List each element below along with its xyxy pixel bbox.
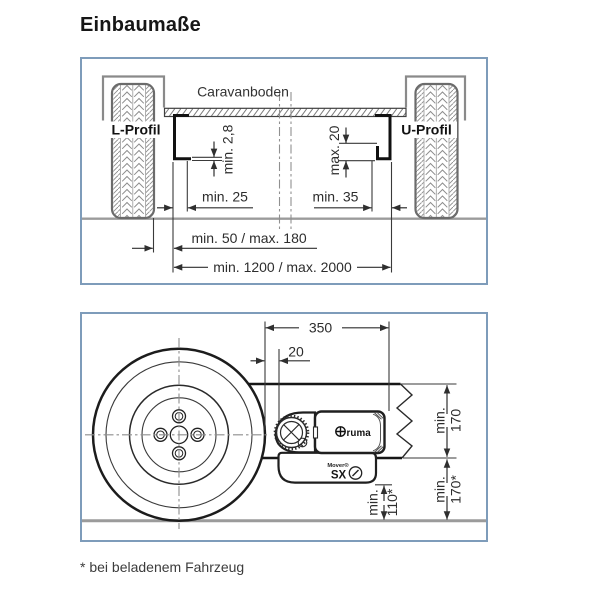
svg-text:min.: min. [432, 407, 448, 433]
dim-tyre-to-rail: min. 50 / max. 180 [132, 230, 317, 248]
side-view-diagram: 350 20 [80, 312, 488, 542]
caravan-floor [165, 108, 407, 116]
dim-roller-gap: 20 [251, 344, 311, 361]
svg-text:U-Profil: U-Profil [401, 122, 452, 138]
left-tyre [112, 84, 154, 218]
manual-page: Einbaumaße [0, 0, 600, 600]
badge-symbol-icon [349, 467, 361, 479]
page-title: Einbaumaße [80, 14, 201, 37]
mover-unit: ruma Mover® SX [275, 412, 385, 483]
svg-text:ruma: ruma [347, 428, 372, 439]
dim-mover-to-ground: min. 110* [365, 486, 401, 520]
svg-text:110*: 110* [384, 488, 400, 516]
svg-text:max. 20: max. 20 [326, 125, 342, 175]
dim-rail-span: min. 1200 / max. 2000 [174, 259, 391, 275]
dim-lip-thickness: min. 2,8 [192, 124, 236, 176]
svg-text:20: 20 [288, 344, 304, 360]
svg-text:L-Profil: L-Profil [112, 122, 161, 138]
svg-text:min. 2,8: min. 2,8 [220, 124, 236, 174]
svg-text:170*: 170* [448, 475, 464, 504]
l-profile-label: L-Profil [106, 122, 167, 139]
svg-text:Mover®: Mover® [327, 462, 349, 469]
svg-text:min.: min. [432, 476, 448, 502]
dim-depth: 350 [266, 319, 389, 335]
dim-rail-clearance: min. 170 [432, 385, 464, 457]
svg-text:170: 170 [448, 409, 464, 433]
svg-text:min. 25: min. 25 [202, 189, 248, 205]
svg-text:min. 35: min. 35 [313, 189, 359, 205]
dim-lip-height: max. 20 [326, 125, 377, 177]
svg-text:350: 350 [309, 319, 333, 335]
cross-section-diagram: L-Profil U-Profil Caravanboden min. 2,8 [80, 57, 488, 285]
wheel-centre-lines [85, 338, 270, 529]
dim-right-flat: min. 35 [313, 189, 407, 208]
u-profile-label: U-Profil [396, 122, 457, 139]
svg-text:min.: min. [365, 489, 381, 515]
svg-text:min. 1200 / max. 2000: min. 1200 / max. 2000 [213, 259, 352, 275]
right-tyre [416, 84, 458, 218]
u-profile-rail [375, 116, 390, 159]
floor-caption: Caravanboden [197, 84, 289, 100]
svg-text:min. 50 / max. 180: min. 50 / max. 180 [192, 230, 307, 246]
dim-rail-to-ground: min. 170* [432, 459, 464, 519]
l-profile-rail [175, 116, 192, 159]
footnote: * bei beladenem Fahrzeug [80, 559, 244, 575]
dim-left-flat: min. 25 [157, 189, 253, 208]
extension-lines [154, 161, 392, 273]
svg-text:SX: SX [331, 470, 347, 482]
break-zigzag [397, 384, 412, 458]
